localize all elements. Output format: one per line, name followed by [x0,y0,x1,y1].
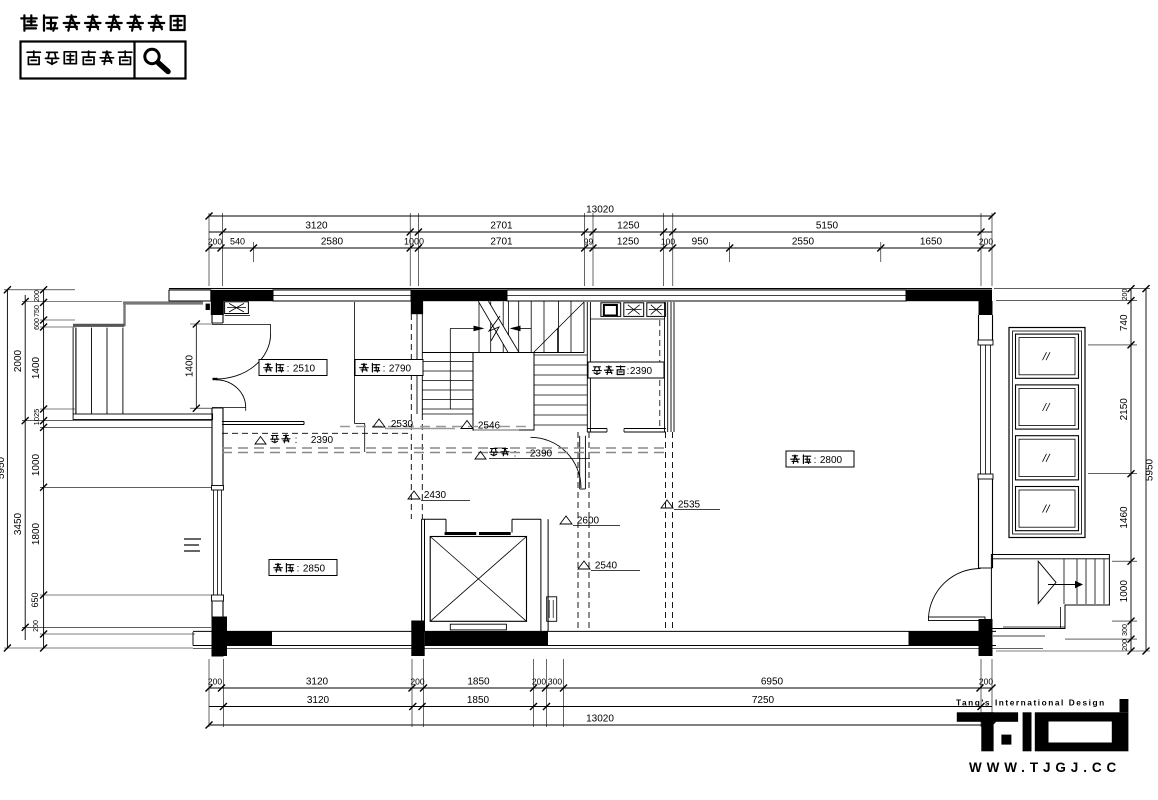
svg-text:200: 200 [410,677,424,687]
svg-text:5950: 5950 [1145,458,1156,481]
svg-text:300: 300 [548,677,562,687]
svg-text:1850: 1850 [467,695,490,706]
svg-text:5150: 5150 [816,221,839,232]
svg-text:2390: 2390 [530,449,553,460]
svg-text:2550: 2550 [792,237,815,248]
svg-text:3120: 3120 [306,677,329,688]
svg-text:200: 200 [1122,639,1129,651]
svg-text:100: 100 [661,237,675,247]
svg-text:2580: 2580 [321,237,344,248]
svg-text:200: 200 [34,290,41,302]
svg-text:1460: 1460 [1119,506,1130,529]
svg-text:1400: 1400 [185,354,196,377]
svg-text:2000: 2000 [13,349,24,372]
svg-text::: : [514,449,517,460]
svg-text:2150: 2150 [1119,398,1130,421]
svg-text:950: 950 [692,237,709,248]
svg-text::: : [297,564,300,575]
svg-text::: : [383,364,386,375]
svg-text:3450: 3450 [13,512,24,535]
svg-text:1800: 1800 [31,522,42,545]
svg-text:200: 200 [208,677,222,687]
svg-text:3120: 3120 [307,695,330,706]
svg-text:2790: 2790 [389,364,412,375]
svg-text:540: 540 [230,237,245,247]
svg-text:1000: 1000 [404,237,424,247]
svg-text::: : [295,435,298,446]
svg-text:13020: 13020 [586,714,614,725]
svg-text:2701: 2701 [490,237,513,248]
svg-text:300: 300 [1122,624,1129,636]
svg-text:13020: 13020 [586,205,614,216]
svg-text:1000: 1000 [31,453,42,476]
svg-text:200: 200 [1122,289,1129,301]
svg-text:7250: 7250 [752,695,775,706]
svg-text:Tang's International Design: Tang's International Design [956,698,1106,708]
svg-text:2390: 2390 [311,435,334,446]
svg-text:2600: 2600 [577,516,600,527]
svg-text:6950: 6950 [761,677,784,688]
svg-text:1250: 1250 [617,221,640,232]
svg-text:5950: 5950 [0,456,7,479]
svg-text:1400: 1400 [31,356,42,379]
svg-text:1025: 1025 [32,409,41,426]
svg-text:99: 99 [584,237,594,247]
svg-text:2510: 2510 [293,364,316,375]
svg-text:1650: 1650 [920,237,943,248]
svg-text::: : [814,455,817,466]
svg-text:200: 200 [33,620,40,632]
svg-text::: : [287,364,290,375]
svg-text:200: 200 [208,237,222,247]
svg-text:WWW.TJGJ.CC: WWW.TJGJ.CC [969,760,1121,775]
svg-text:3120: 3120 [305,221,328,232]
svg-text:2850: 2850 [303,564,326,575]
svg-text:2800: 2800 [820,455,843,466]
svg-text:1850: 1850 [467,677,490,688]
svg-text:200: 200 [532,677,546,687]
svg-text:740: 740 [1119,314,1130,331]
svg-text:2390: 2390 [630,366,653,377]
svg-text:750: 750 [34,305,41,317]
svg-text:1250: 1250 [617,237,640,248]
svg-text:2701: 2701 [490,221,513,232]
svg-text:600: 600 [34,318,41,330]
svg-text:2535: 2535 [678,500,701,511]
svg-text:1000: 1000 [1119,580,1130,603]
svg-text:650: 650 [30,592,40,607]
svg-text:2540: 2540 [595,561,618,572]
svg-text:2430: 2430 [424,490,447,501]
